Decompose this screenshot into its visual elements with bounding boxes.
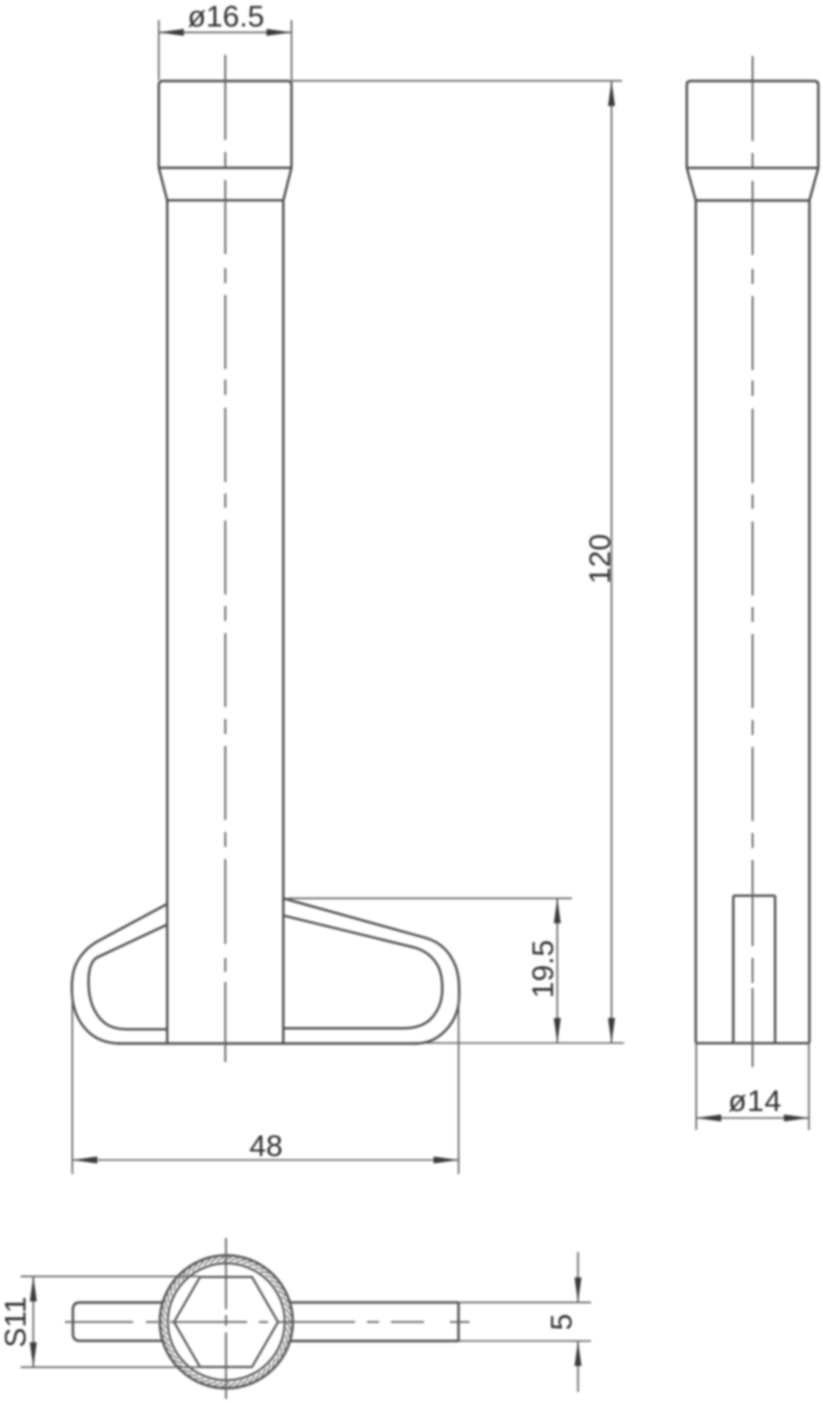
svg-text:ø14: ø14: [728, 1085, 782, 1118]
svg-text:48: 48: [249, 1130, 282, 1163]
svg-text:ø16.5: ø16.5: [188, 1, 265, 34]
svg-text:S11: S11: [0, 1296, 33, 1347]
svg-text:19.5: 19.5: [527, 940, 560, 998]
svg-text:5: 5: [546, 1314, 579, 1331]
svg-text:120: 120: [584, 534, 617, 584]
